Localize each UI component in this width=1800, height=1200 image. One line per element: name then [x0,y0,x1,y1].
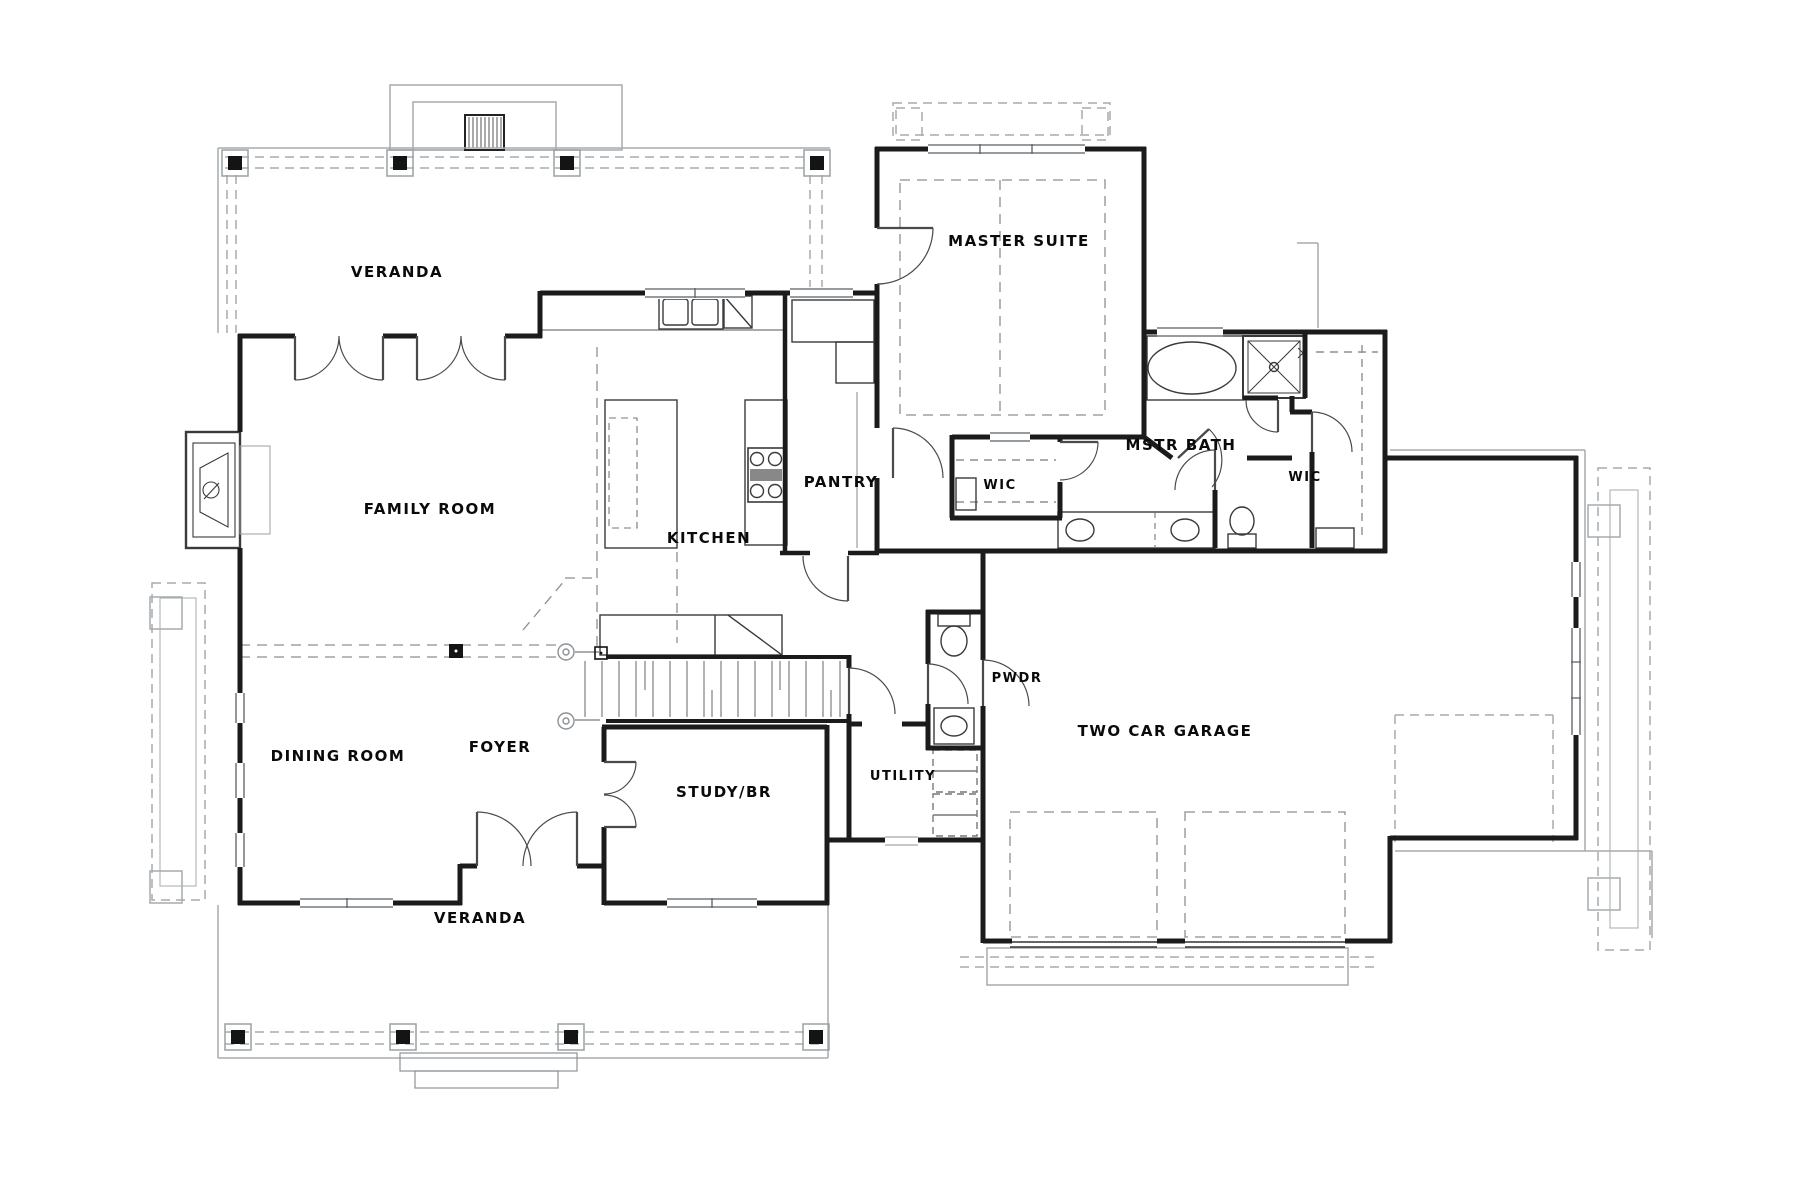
walls-stairs [606,657,849,721]
label-veranda-top: VERANDA [351,263,443,281]
shower [1243,336,1305,398]
label-wic-right: WIC [1288,470,1321,485]
label-dining-room: DINING ROOM [271,747,406,765]
walls-study [602,725,829,905]
master-suite-ceiling [900,180,1105,415]
window-frames [236,144,1581,908]
door-layer [295,228,1352,866]
walls-utility [825,610,985,842]
label-pwdr: PWDR [992,671,1043,686]
label-wic-left: WIC [983,478,1016,493]
pwdr-door [928,664,968,704]
pantry-door [803,556,848,601]
garage-roof-patio [1390,450,1652,938]
stair-treads [585,661,840,717]
label-two-car-garage: TWO CAR GARAGE [1078,722,1253,740]
walls-west [238,334,606,905]
trellis-right [1588,468,1650,950]
study-french-doors [604,762,636,827]
wic-right-fittings [1316,345,1378,548]
bath-wing-roof-edge [1297,243,1318,328]
label-mstr-bath: MSTR BATH [1126,436,1237,454]
window-layer [234,143,1582,909]
master-suite-roof [893,103,1110,140]
veranda-bottom-roof [218,905,828,1088]
pwdr-fixtures [934,614,974,744]
dishwasher [724,296,752,328]
family-veranda-doors [295,336,505,380]
floor-plan-sheet: VERANDA MASTER SUITE FAMILY ROOM KITCHEN… [0,0,1800,1200]
floor-plan-drawing: VERANDA MASTER SUITE FAMILY ROOM KITCHEN… [0,0,1800,1200]
master-hall-door [893,428,943,478]
washer-dryer [933,750,977,836]
garage-door-bays [1010,812,1345,937]
tub [1147,336,1243,400]
toilet-master [1228,507,1256,548]
pantry-cabinets [792,300,874,383]
label-utility: UTILITY [870,769,936,784]
foyer-entry-doors [477,812,577,866]
back-door-threshold [885,837,918,845]
accent-layer [449,644,463,658]
kitchen-island [605,400,677,548]
double-vanity [1058,512,1215,548]
label-master-suite: MASTER SUITE [948,232,1090,250]
kitchen-ceiling-break [523,347,677,650]
fixture-layer [186,288,1378,947]
driveway-apron [960,948,1375,985]
site-layer [150,85,1652,1088]
wic-left-door [1060,442,1098,480]
trellis-left [150,583,205,903]
veranda-top-roof [218,148,830,333]
label-study-br: STUDY/BR [676,783,772,801]
kitchen-counters [540,288,874,548]
label-family-room: FAMILY ROOM [364,500,496,518]
label-kitchen: KITCHEN [667,529,751,547]
stair-landing-counter [600,615,782,655]
family-dining-ceiling-break [240,645,560,657]
fireplace [186,432,270,548]
label-veranda-bottom: VERANDA [434,909,526,927]
walls-pantry [780,293,879,553]
master-suite-door [877,228,933,284]
walls-garage [983,456,1578,943]
window-underlays [234,143,1582,909]
chimney [390,85,622,150]
label-pantry: PANTRY [804,473,879,491]
range [748,448,784,502]
wic-right-door [1312,412,1352,452]
ceiling-dash-layer [240,180,1105,657]
label-foyer: FOYER [469,738,532,756]
stair-hall-door [849,668,895,714]
shower-door [1246,400,1278,432]
